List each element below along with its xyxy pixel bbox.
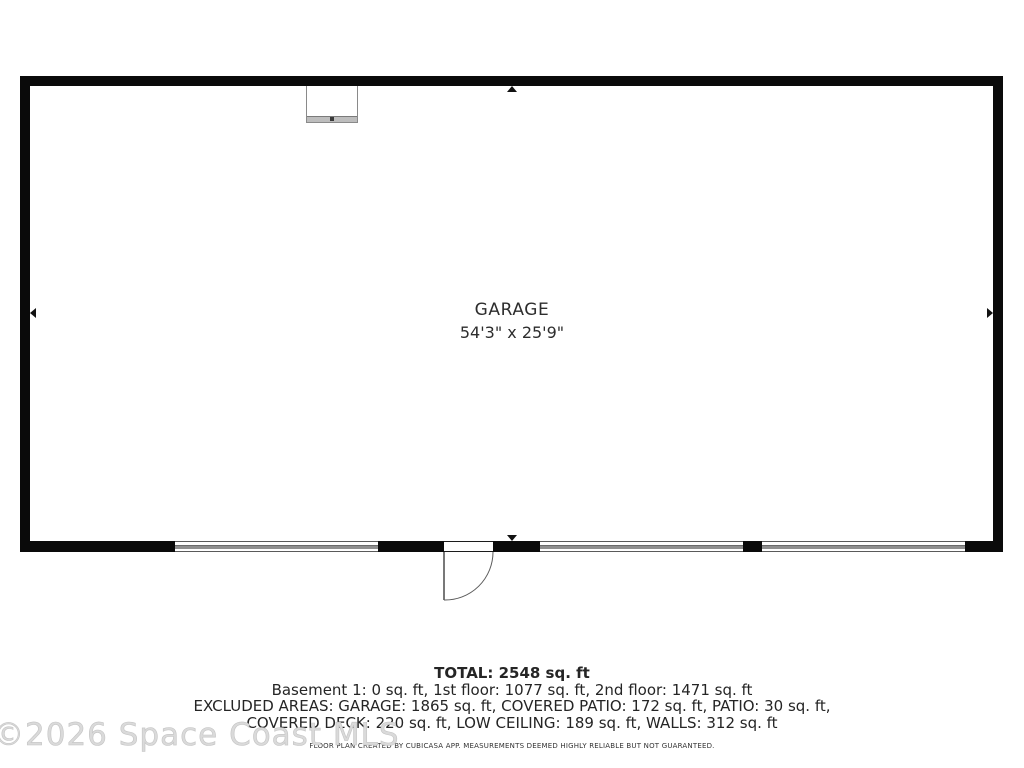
garage-door-stripe <box>175 545 378 549</box>
excluded-areas-line1: EXCLUDED AREAS: GARAGE: 1865 sq. ft, COV… <box>0 698 1024 715</box>
measure-arrow-up-icon <box>507 86 517 92</box>
garage-door-stripe <box>762 545 965 549</box>
room-name: GARAGE <box>0 300 1024 320</box>
watermark: ©2026 Space Coast MLS <box>0 717 400 753</box>
fixture-tick <box>330 117 334 121</box>
room-label-block: GARAGE 54'3" x 25'9" <box>0 300 1024 342</box>
door-swing-icon <box>435 535 510 610</box>
garage-door-segment <box>175 541 378 552</box>
measure-arrow-down-icon <box>507 535 517 541</box>
wall-bottom-segment <box>965 541 1003 552</box>
garage-door-stripe <box>540 545 743 549</box>
garage-door-segment <box>762 541 965 552</box>
floor-plan-page: GARAGE 54'3" x 25'9" TOTAL: 2548 sq. ft … <box>0 0 1024 768</box>
room-dimensions: 54'3" x 25'9" <box>0 323 1024 342</box>
wall-top <box>20 76 1003 86</box>
wall-bottom-segment <box>743 541 762 552</box>
floor-areas: Basement 1: 0 sq. ft, 1st floor: 1077 sq… <box>0 682 1024 699</box>
fixture <box>306 86 358 123</box>
garage-door-segment <box>540 541 743 552</box>
total-area: TOTAL: 2548 sq. ft <box>0 665 1024 682</box>
wall-bottom-segment <box>20 541 175 552</box>
